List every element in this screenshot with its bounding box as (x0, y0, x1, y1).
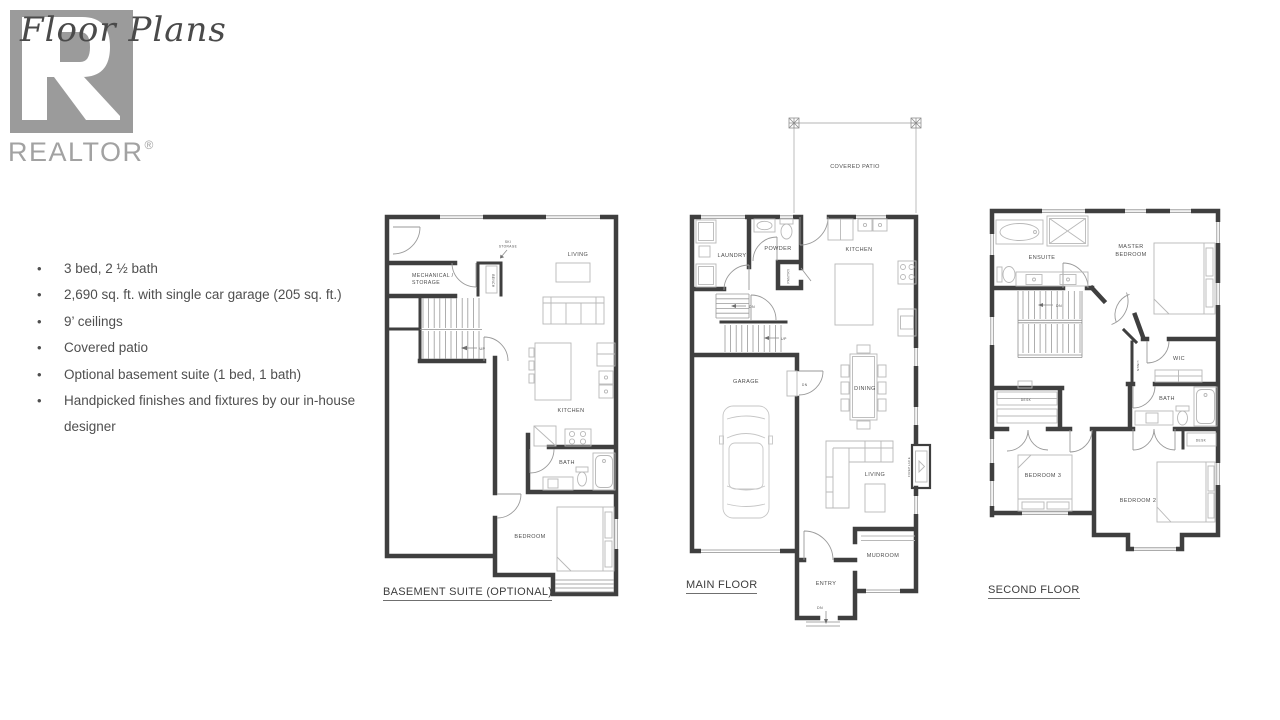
second-stairs (1018, 291, 1082, 358)
kitchen-label: KITCHEN (558, 408, 585, 414)
second-windows (989, 208, 1221, 552)
main-doors (724, 217, 840, 626)
dn-entry-label: DN (817, 606, 823, 610)
page-title: Floor Plans (20, 10, 420, 50)
bedroom2-label: BEDROOM 2 (1120, 498, 1157, 504)
mechanical-label: MECHANICAL / (412, 273, 454, 279)
second-floor-caption: SECOND FLOOR (988, 584, 1080, 599)
desk-right-label: DESK (1196, 439, 1207, 443)
entry-label: ENTRY (816, 581, 837, 587)
wic-label: WIC (1173, 356, 1185, 362)
ensuite-label: ENSUITE (1029, 255, 1056, 261)
feature-item: Optional basement suite (1 bed, 1 bath) (37, 362, 364, 388)
bedroom-label: BEDROOM (514, 534, 545, 540)
bath-label: BATH (559, 460, 575, 466)
floor-plans-page: { "header": { "title": "Floor Plans", "b… (0, 0, 1280, 720)
powder-label: POWDER (764, 246, 791, 252)
feature-item: 2,690 sq. ft. with single car garage (20… (37, 282, 364, 308)
master-bedroom-label-2: BEDROOM (1115, 252, 1146, 258)
main-floor-caption: MAIN FLOOR (686, 579, 757, 594)
bath-label: BATH (1159, 396, 1175, 402)
bench-label: BENCH (491, 274, 495, 287)
covered-patio-label: COVERED PATIO (830, 164, 880, 170)
realtor-wordmark-text: REALTOR (8, 137, 144, 167)
up-label: UP (480, 347, 486, 351)
mechanical-label-2: STORAGE (412, 280, 440, 286)
second-walls (992, 211, 1218, 549)
dn-garage-label: DN (802, 383, 808, 387)
dn-stairs-label: DN (749, 305, 755, 309)
realtor-wordmark: REALTOR® (8, 137, 154, 168)
ski-storage-label-2: STORAGE (499, 245, 517, 249)
basement-floor-plan: MECHANICAL / STORAGE SKI STORAGE BENCH L… (383, 211, 620, 601)
feature-item: Handpicked finishes and fixtures by our … (37, 388, 364, 441)
basement-windows (440, 214, 619, 549)
desk-left-label: DESK (1021, 398, 1032, 402)
feature-list: 3 bed, 2 ½ bath 2,690 sq. ft. with singl… (37, 256, 349, 441)
dining-label: DINING (854, 386, 876, 392)
fireplace-label: FIREPLACE (907, 457, 911, 477)
basement-furniture (486, 263, 615, 592)
garage-label: GARAGE (733, 379, 759, 385)
pantry-label: PANTRY (787, 268, 791, 284)
dn-label: DN (1056, 304, 1062, 308)
laundry-label: LAUNDRY (718, 253, 747, 259)
up-label: UP (781, 337, 787, 341)
main-floor-plan: COVERED PATIO LAUNDRY POWDER PANTRY KITC… (683, 110, 938, 630)
basement-stairs (420, 298, 482, 359)
mudroom-label: MUDROOM (867, 553, 899, 559)
living-label: LIVING (865, 472, 885, 478)
feature-item: 3 bed, 2 ½ bath (37, 256, 364, 282)
second-floor-plan: ENSUITE MASTER BEDROOM WIC LINEN BATH DE… (985, 205, 1225, 565)
ski-storage-label: SKI (505, 240, 511, 244)
kitchen-label: KITCHEN (846, 247, 873, 253)
main-furniture (696, 219, 930, 541)
basement-caption: BASEMENT SUITE (OPTIONAL) (383, 586, 552, 601)
living-label: LIVING (568, 252, 588, 258)
master-bedroom-label: MASTER (1118, 244, 1143, 250)
feature-item: Covered patio (37, 335, 364, 361)
feature-item: 9’ ceilings (37, 309, 364, 335)
bedroom3-label: BEDROOM 3 (1025, 473, 1062, 479)
linen-label: LINEN (1136, 361, 1140, 372)
car (720, 406, 773, 518)
registered-symbol: ® (145, 138, 155, 152)
